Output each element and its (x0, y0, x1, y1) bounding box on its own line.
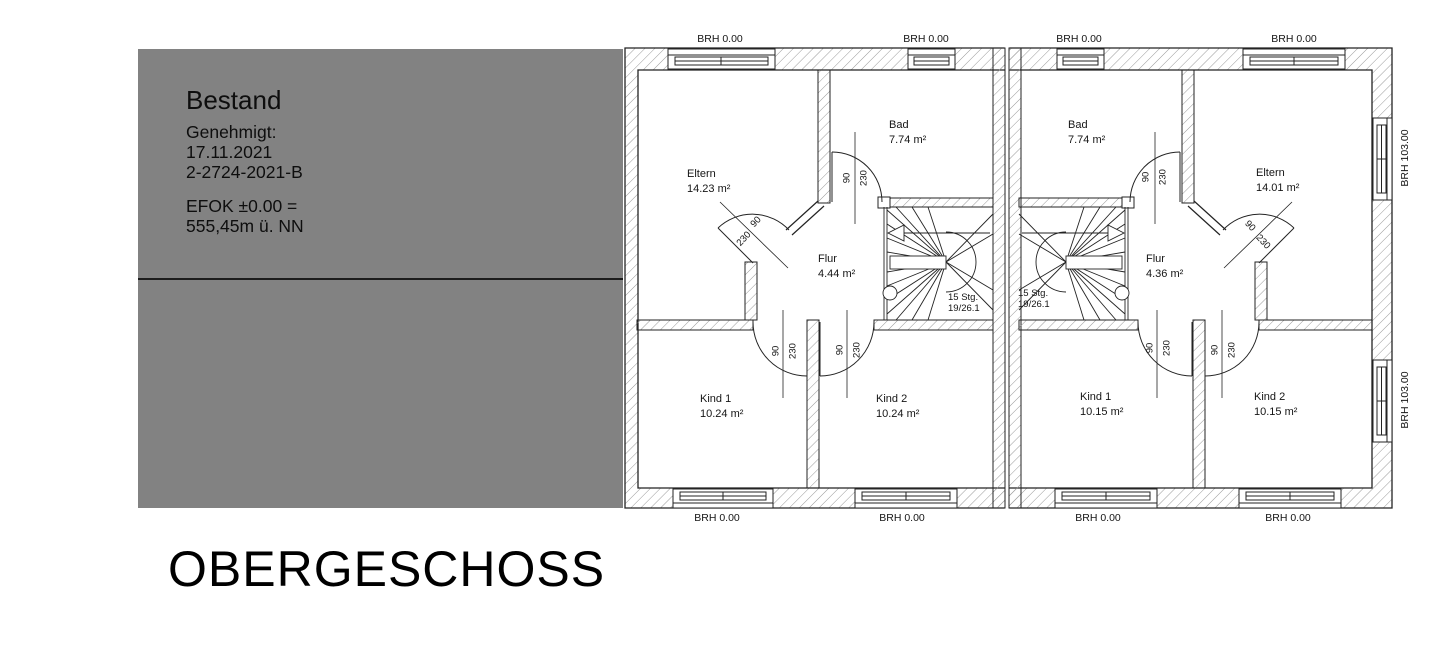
door-height-label: 230 (735, 229, 754, 248)
door-width-label: 90 (1141, 172, 1152, 183)
room-area: 10.15 m² (1080, 406, 1124, 418)
door-height-label: 230 (1254, 232, 1273, 251)
datum-line-1: EFOK ±0.00 = (186, 196, 304, 216)
sill-label-top: BRH 0.00 (697, 33, 743, 45)
room-name: Eltern (687, 168, 716, 180)
door-jamb (1122, 197, 1134, 208)
room-name: Eltern (1256, 167, 1285, 179)
approved-date: 17.11.2021 (186, 142, 304, 162)
party-wall-right-leaf (1009, 48, 1021, 508)
title-panel: Bestand Genehmigt: 17.11.2021 2-2724-202… (138, 49, 623, 508)
door-height-label: 230 (1158, 169, 1169, 185)
room-name: Flur (818, 253, 837, 265)
interior-walls-left-unit (637, 70, 993, 488)
stair-direction-arrow (888, 225, 904, 241)
sill-label-bottom: BRH 0.00 (694, 512, 740, 524)
sill-label-bottom: BRH 0.00 (1075, 512, 1121, 524)
title-block: Bestand Genehmigt: 17.11.2021 2-2724-202… (186, 85, 304, 236)
sill-label-top: BRH 0.00 (1271, 33, 1317, 45)
door-height-label: 230 (1162, 340, 1173, 356)
party-wall-left-leaf (993, 48, 1005, 508)
room-area: 14.01 m² (1256, 182, 1300, 194)
sill-label-top: BRH 0.00 (903, 33, 949, 45)
panel-divider (138, 278, 623, 280)
sill-label-top: BRH 0.00 (1056, 33, 1102, 45)
room-area: 10.24 m² (700, 408, 744, 420)
room-name: Kind 2 (1254, 391, 1285, 403)
approved-label: Genehmigt: (186, 122, 304, 142)
floor-title: OBERGESCHOSS (168, 540, 605, 598)
stair-label: 19/26.1 (1018, 299, 1050, 310)
room-name: Kind 1 (1080, 391, 1111, 403)
door-height-label: 230 (859, 170, 870, 186)
room-name: Kind 2 (876, 393, 907, 405)
door-jamb (878, 197, 890, 208)
door-width-label: 90 (1210, 345, 1221, 356)
datum-line-2: 555,45m ü. NN (186, 216, 304, 236)
door-height-label: 230 (1227, 342, 1238, 358)
status-label: Bestand (186, 85, 304, 115)
door-width-label: 90 (1242, 218, 1257, 233)
sill-label-bottom: BRH 0.00 (1265, 512, 1311, 524)
stair-symbol-circle (1115, 286, 1129, 300)
room-name: Kind 1 (700, 393, 731, 405)
door-width-label: 90 (1145, 343, 1156, 354)
sill-label-side: BRH 103.00 (1399, 371, 1411, 428)
sill-label-bottom: BRH 0.00 (879, 512, 925, 524)
file-number: 2-2724-2021-B (186, 162, 304, 182)
door-width-label: 90 (771, 346, 782, 357)
stair-label: 19/26.1 (948, 303, 980, 314)
stair-label: 15 Stg. (1018, 288, 1048, 299)
stair-label: 15 Stg. (948, 292, 978, 303)
room-name: Flur (1146, 253, 1165, 265)
door-height-label: 230 (852, 342, 863, 358)
interior-walls-right-unit (1019, 70, 1372, 488)
room-area: 4.36 m² (1146, 268, 1184, 280)
room-area: 14.23 m² (687, 183, 731, 195)
door-width-label: 90 (748, 214, 763, 229)
stair-direction-arrow (1108, 225, 1124, 241)
sill-label-side: BRH 103.00 (1399, 129, 1411, 186)
drawing-sheet: { "colors": { "panel_gray": "#828282", "… (0, 0, 1440, 652)
door-width-label: 90 (835, 345, 846, 356)
door-width-label: 90 (842, 173, 853, 184)
room-name: Bad (1068, 119, 1088, 131)
sill-labels: BRH 0.00 BRH 0.00 BRH 0.00 BRH 0.00 BRH … (694, 33, 1411, 524)
door-height-label: 230 (788, 343, 799, 359)
room-area: 10.24 m² (876, 408, 920, 420)
room-area: 7.74 m² (889, 134, 927, 146)
room-name: Bad (889, 119, 909, 131)
room-area: 10.15 m² (1254, 406, 1298, 418)
room-area: 4.44 m² (818, 268, 856, 280)
stair-symbol-circle (883, 286, 897, 300)
room-area: 7.74 m² (1068, 134, 1106, 146)
